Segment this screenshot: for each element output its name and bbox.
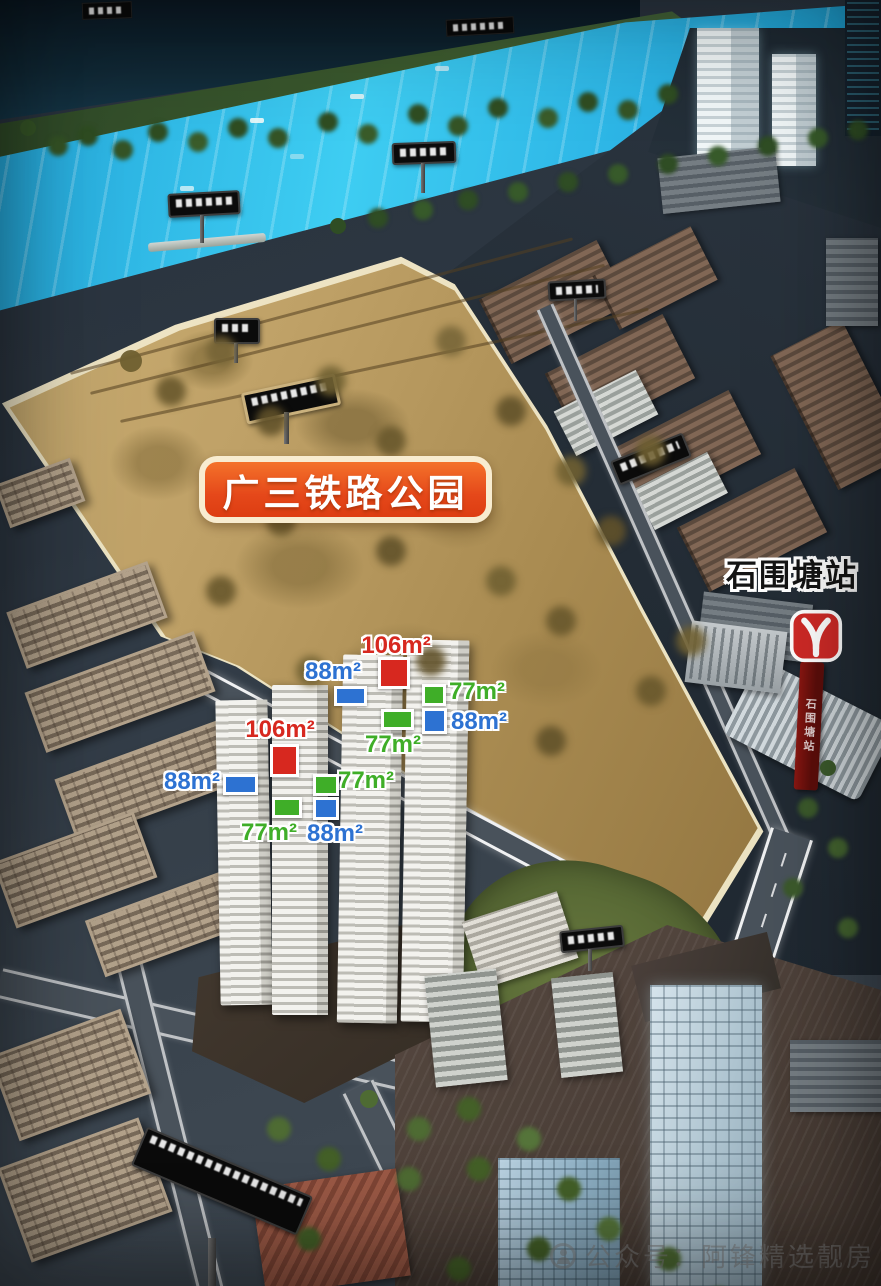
unit-color-swatch-green [381,709,414,730]
unit-size-label: 77m² [338,767,394,795]
unit-color-swatch-blue [313,797,339,820]
unit-color-swatch-red [378,657,410,689]
unit-color-swatch-blue [223,774,258,795]
unit-color-swatch-green [313,774,339,796]
unit-size-tags-layer: 106m²88m²77m²88m²77m²106m²88m²77m²77m²88… [0,0,881,1286]
unit-size-label: 88m² [451,708,507,736]
unit-size-label: 77m² [365,731,421,759]
unit-color-swatch-green [272,797,302,818]
unit-color-swatch-blue [422,708,447,734]
unit-color-swatch-green [422,684,446,706]
wechat-account-icon [550,1243,576,1269]
unit-size-label: 106m² [361,632,430,660]
unit-size-label: 88m² [307,820,363,848]
unit-size-label: 77m² [241,819,297,847]
watermark: 公众号：阿锋精选靓房 [550,1237,875,1274]
unit-color-swatch-red [270,744,299,777]
unit-size-label: 88m² [305,658,361,686]
watermark-text: 公众号：阿锋精选靓房 [585,1237,875,1274]
unit-size-label: 106m² [245,716,314,744]
unit-size-label: 77m² [449,678,505,706]
scale-model-photo: 石围塘站 广三铁路公园 石围塘站 106m²88m²77m²88m²77m²10… [0,0,881,1286]
unit-color-swatch-blue [334,686,367,706]
unit-size-label: 88m² [164,768,220,796]
